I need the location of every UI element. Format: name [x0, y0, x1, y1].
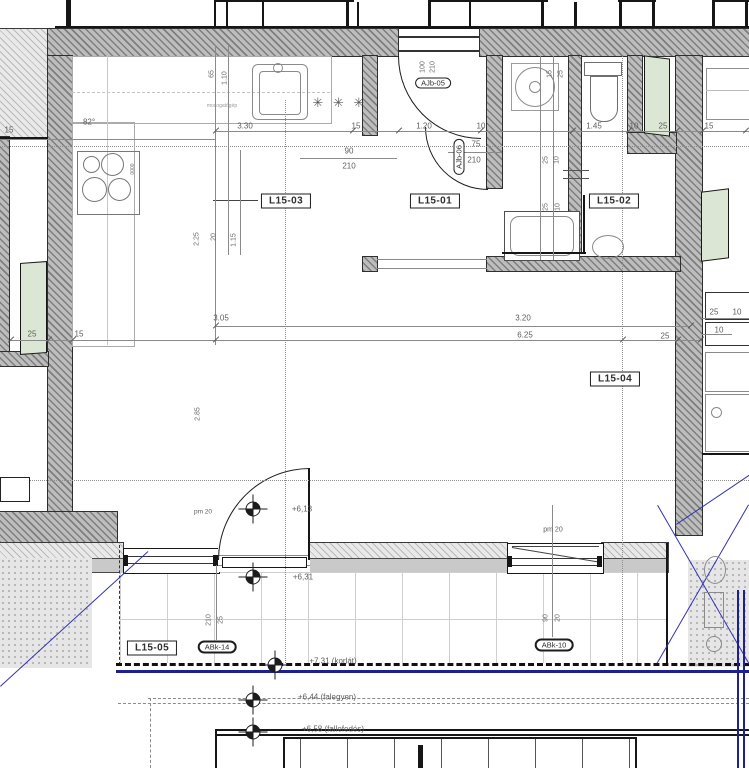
- dim-text: 6.25: [517, 331, 533, 340]
- exterior-wall-top: [48, 29, 398, 56]
- lower-wall-line: [215, 729, 749, 731]
- neighbor-fixture: [704, 592, 724, 628]
- railing-post: [652, 2, 655, 26]
- dim-text: 10: [733, 308, 742, 317]
- lower-grid-line: [488, 739, 489, 768]
- lower-grid-line: [582, 739, 583, 768]
- railing-post: [712, 2, 715, 26]
- dim-text-v: 25: [218, 616, 225, 624]
- dim-text-v: 90: [543, 614, 550, 622]
- dim-text: 3.05: [213, 314, 229, 323]
- lower-grid-line: [535, 739, 536, 768]
- dim-line: [215, 131, 749, 132]
- facade-band-lower: [602, 559, 668, 572]
- dim-text: 25: [659, 122, 668, 131]
- exterior-wall-top: [480, 29, 749, 56]
- dim-text: 3.20: [515, 314, 531, 323]
- lower-grid-line: [300, 739, 301, 768]
- window-post: [507, 556, 512, 567]
- lower-post: [418, 745, 423, 768]
- dim-text: 10: [477, 122, 486, 131]
- window-post: [123, 555, 128, 566]
- balcony-railing-dashed: [116, 663, 749, 666]
- elevation-marker: [246, 502, 261, 517]
- lower-grid-line: [441, 739, 442, 768]
- dim-text-v: 25: [543, 156, 550, 164]
- dim-text-v: 100: [420, 61, 427, 73]
- window-pane-line: [126, 563, 215, 564]
- railing-post: [346, 2, 349, 26]
- bath-tick: [563, 170, 589, 171]
- elevation-marker: [246, 570, 261, 585]
- dim-line: [0, 139, 215, 140]
- elevation-text: +6,31: [293, 573, 313, 582]
- window-pane-line: [126, 556, 215, 557]
- dim-text: 3.30: [237, 122, 253, 131]
- facade-band: [0, 543, 123, 559]
- dim-text: 1.20: [416, 122, 432, 131]
- lower-wall-line: [215, 734, 749, 736]
- wall-internal: [363, 257, 377, 271]
- threshold-line: [377, 268, 487, 269]
- facade-band: [602, 543, 668, 559]
- upper-level-line: [214, 0, 354, 2]
- window-label-abk14: ABk-14: [198, 641, 237, 654]
- balcony-edge-dashed: [119, 545, 120, 665]
- room-label-l15-04: L15-04: [590, 372, 640, 387]
- dim-text-v: 1.15: [231, 233, 238, 247]
- wall-balcony-corner: [0, 512, 117, 543]
- dim-text: 25: [710, 308, 719, 317]
- lower-balcony-frame: [283, 737, 637, 768]
- railing-post: [428, 2, 431, 26]
- stove-burner: [101, 153, 124, 176]
- bath-wall-line: [502, 252, 586, 254]
- railing-post: [574, 2, 577, 26]
- elevation-marker: [246, 725, 261, 740]
- dim-text: 10: [715, 326, 724, 335]
- toilet-bowl: [590, 76, 618, 122]
- dim-text-v: 2.25: [194, 232, 201, 246]
- railing-post: [226, 2, 228, 26]
- dim-line-v: [540, 56, 541, 260]
- railing-post: [619, 2, 622, 26]
- stove-burner: [82, 177, 107, 202]
- hob-symbol: ✳ ✳ ✳: [313, 95, 368, 111]
- dim-line: [10, 340, 700, 341]
- dim-text: 1.45: [586, 122, 602, 131]
- dim-text: 15: [352, 122, 361, 131]
- floor-plan: 0000 ✳ ✳ ✳ mosogatógép: [0, 0, 749, 768]
- blue-guide-v: [743, 590, 745, 768]
- section-line-v: [622, 56, 623, 663]
- railing-post: [66, 0, 71, 26]
- neighbor-table: [706, 68, 749, 120]
- room-label-l15-01: L15-01: [410, 194, 460, 209]
- railing-post: [357, 2, 359, 26]
- dim-text-v: 210: [430, 61, 437, 73]
- facade-band-lower: [310, 559, 507, 572]
- dim-text: 10: [630, 122, 639, 131]
- railing-post: [469, 2, 471, 26]
- window-opening-line: [512, 546, 599, 547]
- dim-text: 15: [705, 122, 714, 131]
- parapet-text: pm 20: [194, 509, 212, 516]
- dim-text: 210: [342, 162, 355, 171]
- dim-text-v: 210: [206, 614, 213, 626]
- dim-text-v: 10: [554, 156, 561, 164]
- lower-edge-dashed: [118, 703, 749, 704]
- dim-text-v: 20: [555, 614, 562, 622]
- section-line-v: [285, 100, 286, 663]
- left-neighbor-box: [0, 477, 30, 502]
- neighbor-counter: [705, 352, 749, 392]
- neighbor-knob: [711, 407, 722, 418]
- wall-neighbor-left: [0, 137, 9, 360]
- dim-text-v: 25: [558, 70, 565, 78]
- upper-level-line: [618, 0, 656, 2]
- dim-text: 15: [75, 330, 84, 339]
- blue-guide-v: [737, 590, 739, 768]
- railing-post: [262, 2, 264, 26]
- label-leader: [213, 200, 258, 201]
- toilet-tank: [584, 62, 622, 76]
- dim-text-v: 65: [209, 70, 216, 78]
- dim-line-v: [552, 505, 553, 637]
- dim-text-v: 10: [555, 203, 562, 211]
- dim-text-v: 1.10: [222, 71, 229, 85]
- lower-grid-line: [629, 739, 630, 768]
- door-label-ajb05: AJb-05: [415, 78, 451, 89]
- dim-text-v: 25: [543, 203, 550, 211]
- neighbor-counter: [705, 394, 749, 452]
- entry-door-frame: [398, 36, 480, 38]
- stove-burner: [108, 178, 131, 201]
- dim-text-v: 2.85: [195, 407, 202, 421]
- appliance-label: mosogatógép: [207, 103, 237, 109]
- parapet-text: pm 20: [543, 527, 562, 534]
- balcony-door-leaf-line: [308, 468, 310, 560]
- railing-blue-line: [116, 670, 749, 673]
- stove-burner: [83, 156, 100, 173]
- dim-line: [300, 158, 397, 159]
- neighbor-fixture: [706, 636, 722, 652]
- window-post: [597, 556, 602, 567]
- room-label-l15-02: L15-02: [589, 194, 639, 209]
- lower-grid-line: [394, 739, 395, 768]
- wall-corner-light: [0, 29, 48, 137]
- dim-text-v: 15: [547, 70, 554, 78]
- dim-text: 25: [661, 332, 670, 341]
- wall-hall-bath: [487, 56, 502, 188]
- railing-post: [214, 2, 216, 26]
- bath-wall-line: [583, 195, 585, 253]
- sink-faucet: [273, 63, 283, 73]
- facade-band: [310, 543, 507, 559]
- elevation-marker: [268, 658, 283, 673]
- lower-grid-line: [347, 739, 348, 768]
- dim-line: [702, 318, 749, 319]
- upper-level-line: [428, 0, 548, 2]
- balcony-door-swing: [218, 468, 310, 560]
- dim-text: 25: [28, 330, 37, 339]
- neighbor-wall-line: [702, 453, 749, 455]
- dim-text: 75: [472, 140, 481, 149]
- dim-text: 15: [5, 126, 14, 135]
- railing-post: [541, 2, 544, 26]
- elevation-text: +6,44 (falegyen): [298, 693, 356, 702]
- room-label-l15-03: L15-03: [261, 194, 311, 209]
- elevation-marker: [246, 693, 261, 708]
- kitchen-sink-basin: [259, 71, 301, 115]
- dim-line: [215, 326, 690, 327]
- neighbor-fixture: [704, 556, 726, 584]
- entry-door-frame: [398, 50, 480, 52]
- dim-text: 210: [467, 156, 480, 165]
- bath-tick: [563, 178, 589, 179]
- dim-text: 82°: [83, 118, 95, 127]
- elevation-text: +6,13: [292, 505, 312, 514]
- door-label-ajb06: AJb-06: [454, 139, 465, 175]
- stove-knobs: 0000: [130, 163, 136, 174]
- neighbor-table-line: [706, 90, 749, 91]
- room-label-l15-05: L15-05: [127, 641, 177, 656]
- elevation-text: +6,58 (fallefedés): [302, 725, 364, 734]
- washbasin: [592, 235, 624, 259]
- upper-level-line: [712, 0, 749, 2]
- dim-line-v: [240, 150, 241, 255]
- railing-post: [745, 2, 748, 26]
- bathtub-inner: [510, 216, 574, 256]
- threshold-line: [377, 259, 487, 260]
- dim-text-v: 20: [211, 233, 218, 241]
- exterior-wall-left: [48, 56, 72, 562]
- dim-line-v: [216, 565, 217, 640]
- window-pane-line: [510, 565, 599, 566]
- section-line-h: [0, 480, 749, 481]
- lower-wall-line-v: [215, 729, 217, 768]
- elevation-text: +7,31 (korlát): [309, 657, 356, 666]
- dim-text: 90: [345, 147, 354, 156]
- dim-line-v: [215, 45, 216, 345]
- lower-edge-dashed-v: [150, 698, 151, 768]
- window-label-abk10: ABk-10: [535, 639, 574, 652]
- window-glazing-neighbor: [701, 188, 729, 261]
